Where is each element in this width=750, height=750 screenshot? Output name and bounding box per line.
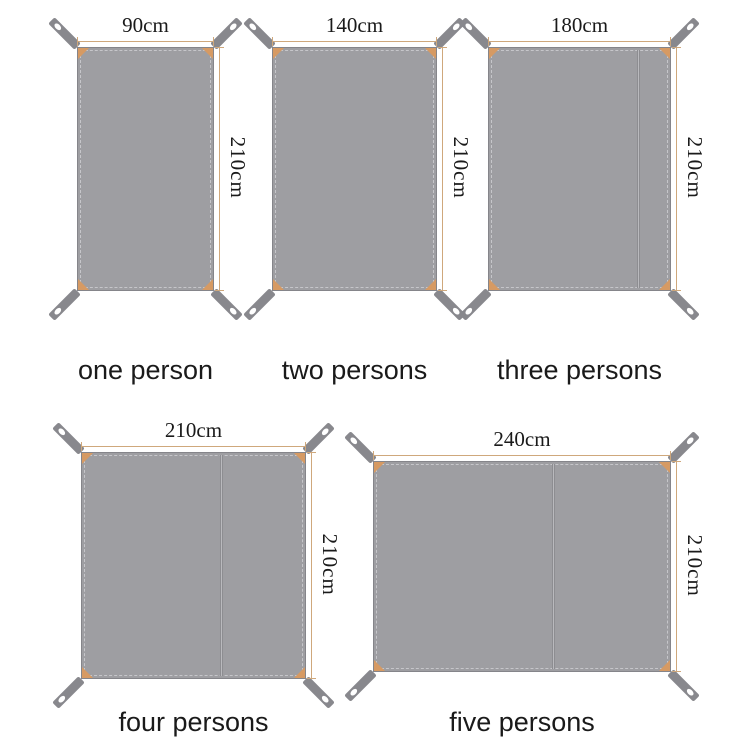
height-dimension-line bbox=[442, 47, 443, 291]
corner-strap-icon bbox=[302, 422, 335, 455]
width-dimension-line bbox=[81, 446, 306, 447]
corner-strap-icon bbox=[667, 288, 700, 321]
corner-strap-icon bbox=[344, 431, 377, 464]
corner-strap-icon bbox=[459, 17, 492, 50]
tarp-caption: five persons bbox=[343, 707, 701, 738]
fold-seam bbox=[552, 464, 555, 669]
corner-strap-icon bbox=[210, 288, 243, 321]
tarp-fabric bbox=[81, 452, 306, 679]
corner-strap-icon bbox=[48, 288, 81, 321]
corner-strap-icon bbox=[459, 288, 492, 321]
width-dimension-label: 140cm bbox=[272, 13, 437, 38]
height-dimension-label: 210cm bbox=[317, 533, 342, 595]
height-dimension-line bbox=[219, 47, 220, 291]
tarp-fabric bbox=[488, 47, 671, 291]
corner-patch-icon bbox=[77, 47, 90, 60]
tarp-fabric bbox=[77, 47, 214, 291]
corner-patch-icon bbox=[201, 278, 214, 291]
corner-patch-icon bbox=[272, 278, 285, 291]
corner-patch-icon bbox=[373, 461, 386, 474]
width-dimension-line bbox=[77, 41, 214, 42]
fold-seam bbox=[220, 455, 223, 676]
corner-patch-icon bbox=[658, 461, 671, 474]
height-dimension-label: 210cm bbox=[682, 137, 707, 199]
height-dimension-label: 210cm bbox=[682, 534, 707, 596]
corner-strap-icon bbox=[48, 17, 81, 50]
tarp-four-persons: 210cm 210cm four persons bbox=[81, 452, 306, 679]
width-dimension-line bbox=[373, 455, 671, 456]
height-dimension-label: 210cm bbox=[225, 137, 250, 199]
width-dimension-label: 210cm bbox=[81, 418, 306, 443]
fold-seam bbox=[637, 50, 640, 288]
corner-strap-icon bbox=[243, 17, 276, 50]
corner-patch-icon bbox=[488, 47, 501, 60]
corner-patch-icon bbox=[81, 666, 94, 679]
corner-strap-icon bbox=[667, 17, 700, 50]
corner-strap-icon bbox=[667, 669, 700, 702]
corner-patch-icon bbox=[77, 278, 90, 291]
tarp-fabric bbox=[272, 47, 437, 291]
tarp-caption: one person bbox=[47, 355, 244, 386]
corner-strap-icon bbox=[210, 17, 243, 50]
width-dimension-label: 90cm bbox=[77, 13, 214, 38]
corner-patch-icon bbox=[293, 666, 306, 679]
corner-patch-icon bbox=[658, 278, 671, 291]
width-dimension-label: 240cm bbox=[373, 427, 671, 452]
corner-strap-icon bbox=[302, 676, 335, 709]
tarp-caption: three persons bbox=[458, 355, 701, 386]
height-dimension-line bbox=[676, 461, 677, 672]
size-comparison-diagram: 90cm 210cm one person 140cm 210cm two pe… bbox=[0, 0, 750, 750]
width-dimension-line bbox=[488, 41, 671, 42]
width-dimension-line bbox=[272, 41, 437, 42]
height-dimension-line bbox=[311, 452, 312, 679]
corner-strap-icon bbox=[243, 288, 276, 321]
tarp-caption: four persons bbox=[51, 707, 336, 738]
height-dimension-line bbox=[676, 47, 677, 291]
tarp-three-persons: 180cm 210cm three persons bbox=[488, 47, 671, 291]
corner-strap-icon bbox=[667, 431, 700, 464]
tarp-five-persons: 240cm 210cm five persons bbox=[373, 461, 671, 672]
tarp-fabric bbox=[373, 461, 671, 672]
corner-patch-icon bbox=[201, 47, 214, 60]
corner-strap-icon bbox=[52, 422, 85, 455]
tarp-one-person: 90cm 210cm one person bbox=[77, 47, 214, 291]
corner-patch-icon bbox=[373, 659, 386, 672]
corner-patch-icon bbox=[293, 452, 306, 465]
height-dimension-label: 210cm bbox=[448, 137, 473, 199]
tarp-two-persons: 140cm 210cm two persons bbox=[272, 47, 437, 291]
corner-patch-icon bbox=[272, 47, 285, 60]
corner-patch-icon bbox=[424, 278, 437, 291]
corner-patch-icon bbox=[658, 659, 671, 672]
tarp-caption: two persons bbox=[242, 355, 467, 386]
width-dimension-label: 180cm bbox=[488, 13, 671, 38]
corner-patch-icon bbox=[81, 452, 94, 465]
corner-strap-icon bbox=[52, 676, 85, 709]
corner-patch-icon bbox=[488, 278, 501, 291]
corner-patch-icon bbox=[424, 47, 437, 60]
corner-patch-icon bbox=[658, 47, 671, 60]
corner-strap-icon bbox=[344, 669, 377, 702]
